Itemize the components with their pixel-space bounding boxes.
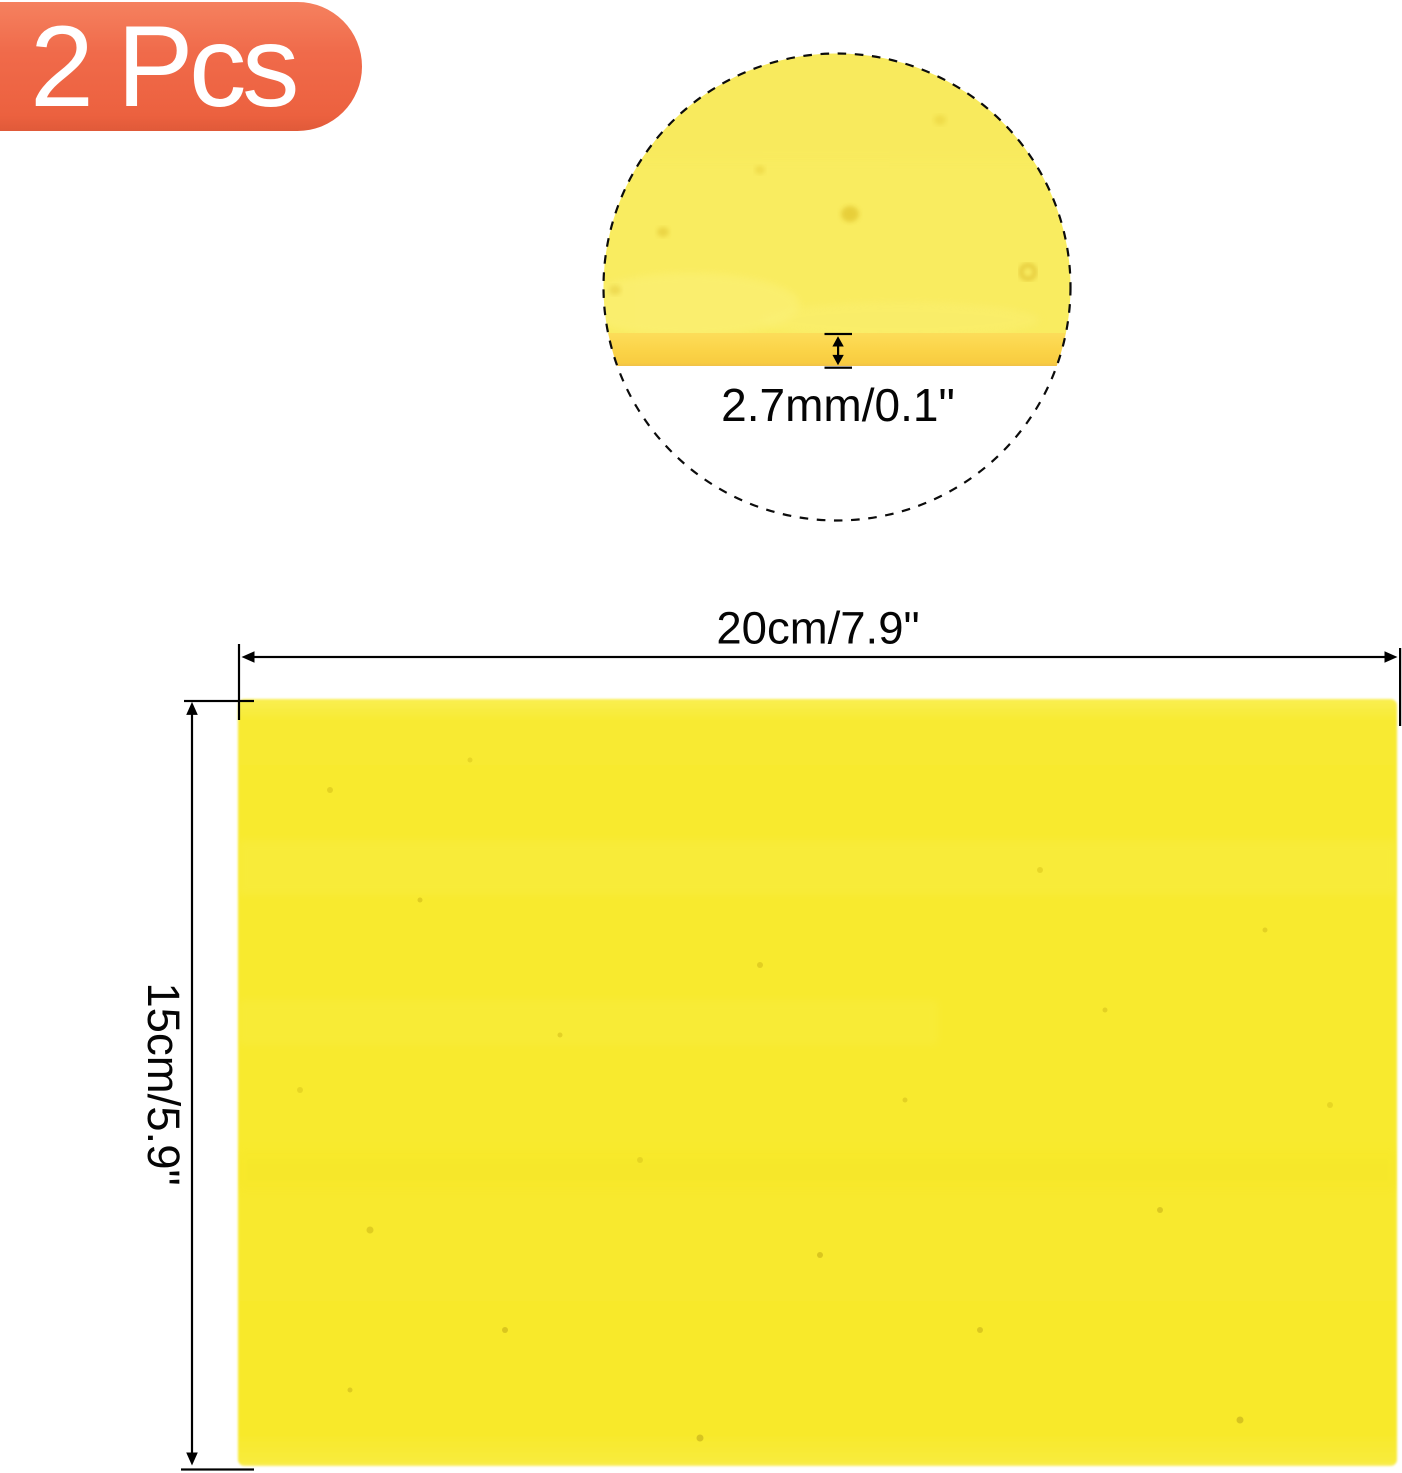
svg-text:20cm/7.9": 20cm/7.9" <box>716 603 919 654</box>
svg-text:2 Pcs: 2 Pcs <box>30 3 296 131</box>
svg-text:2.7mm/0.1": 2.7mm/0.1" <box>721 379 955 431</box>
svg-text:15cm/5.9": 15cm/5.9" <box>138 982 189 1185</box>
